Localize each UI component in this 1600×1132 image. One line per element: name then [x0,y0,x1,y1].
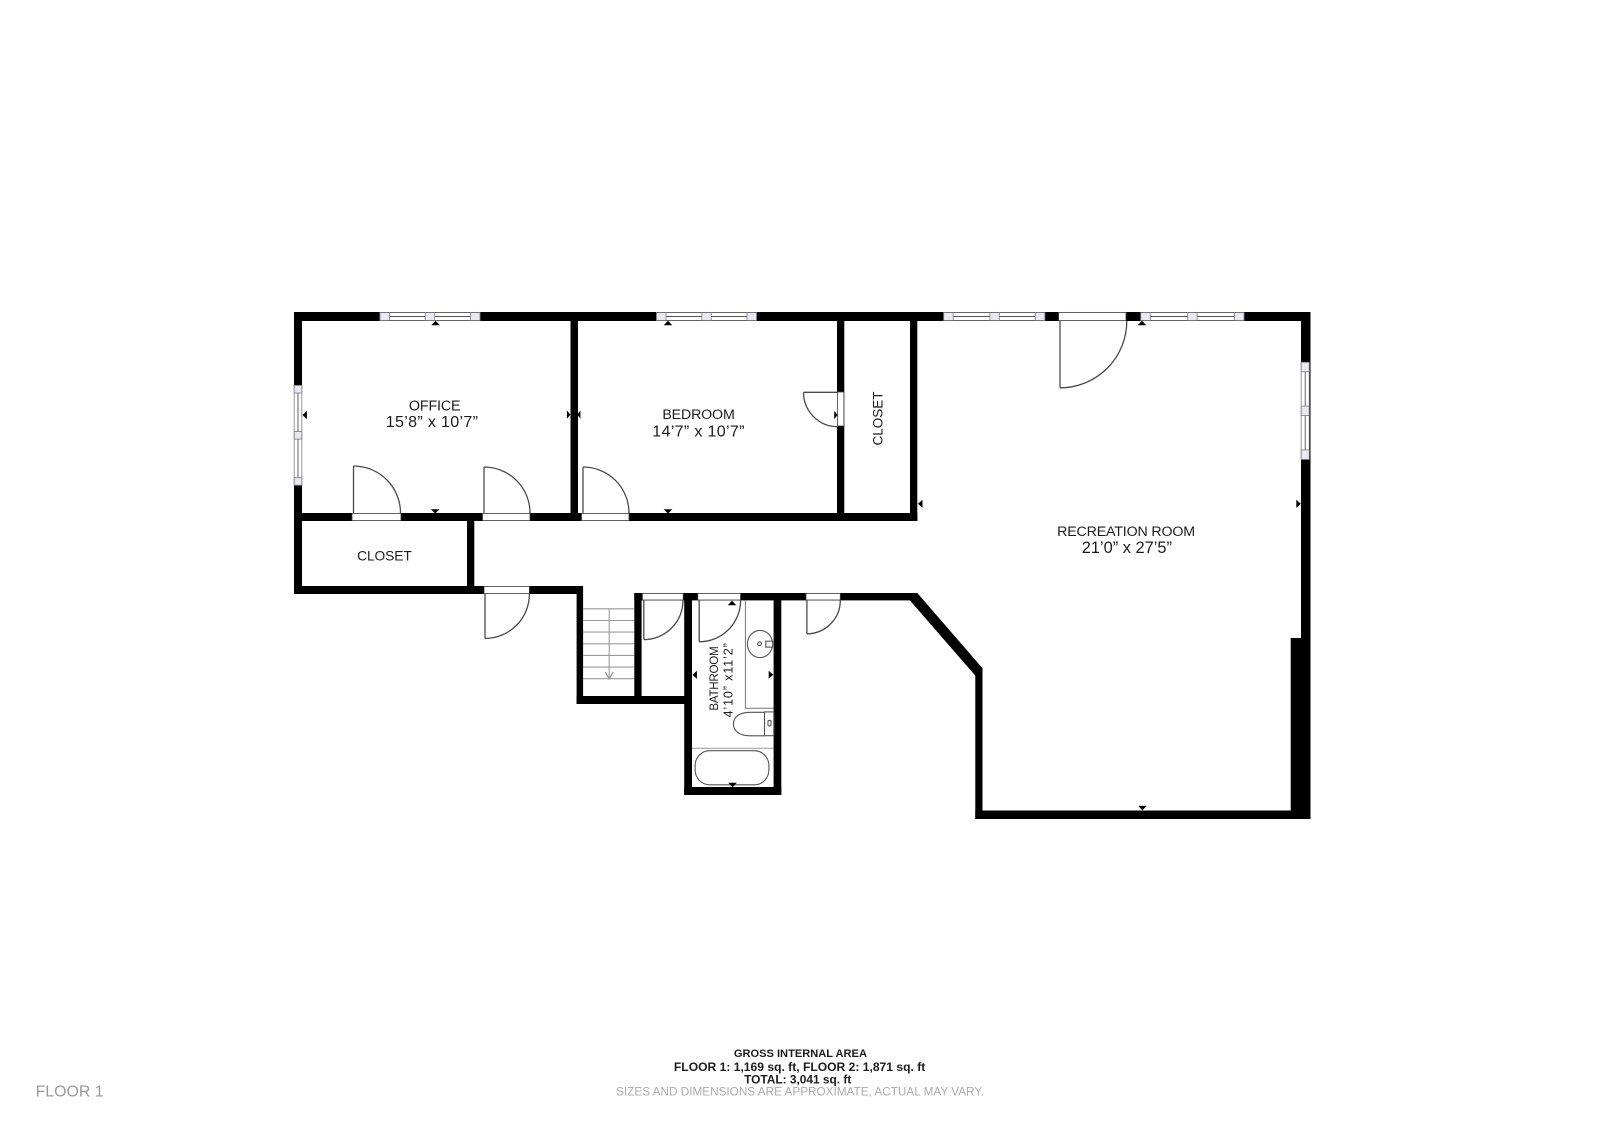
svg-text:4’10” x11’2”: 4’10” x11’2” [722,642,736,717]
svg-text:21’0” x 27’5”: 21’0” x 27’5” [1082,539,1172,557]
svg-text:FLOOR 1: FLOOR 1 [36,1084,104,1101]
svg-text:SIZES AND DIMENSIONS ARE APPRO: SIZES AND DIMENSIONS ARE APPROXIMATE, AC… [616,1085,984,1098]
svg-text:14’7” x 10’7”: 14’7” x 10’7” [652,422,744,440]
svg-text:RECREATION ROOM: RECREATION ROOM [1057,524,1195,540]
svg-text:BATHROOM: BATHROOM [708,647,721,711]
svg-text:CLOSET: CLOSET [357,548,412,563]
svg-text:GROSS INTERNAL AREA: GROSS INTERNAL AREA [734,1048,867,1060]
svg-text:15’8” x 10’7”: 15’8” x 10’7” [386,413,478,431]
svg-text:CLOSET: CLOSET [870,391,885,445]
svg-text:BEDROOM: BEDROOM [662,407,734,423]
